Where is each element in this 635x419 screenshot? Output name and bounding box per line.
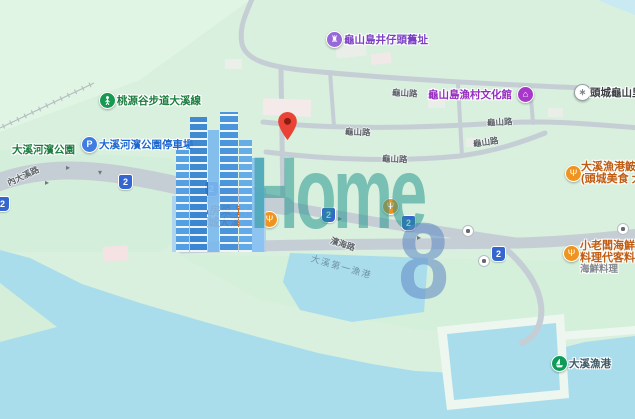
skyline-tower xyxy=(190,117,207,252)
poi-label-restaurant-boss[interactable]: 小老闆海鮮 料理代客料理 海鮮料理 xyxy=(580,240,635,276)
parking-icon[interactable]: P xyxy=(81,136,98,153)
corner-sea xyxy=(598,0,635,15)
poi-label-restaurant-fish[interactable]: 大溪漁港鮟鱇 (頭城美食 大 xyxy=(581,161,635,185)
parking-glyph: P xyxy=(86,140,92,149)
route-shield-2: 2 xyxy=(0,196,10,212)
map-pin-icon[interactable] xyxy=(278,112,297,140)
restaurant-boss-line1: 小老闆海鮮 xyxy=(580,240,635,252)
harbor-basin-water xyxy=(447,323,560,400)
poi-label-community[interactable]: 頭城龜山里活 xyxy=(590,85,635,100)
hiking-icon[interactable] xyxy=(99,92,116,109)
road-label-guishan-1: 龜山路 xyxy=(392,86,418,99)
restaurant-boss-line2: 料理代客料理 xyxy=(580,252,635,264)
watermark-number-text: 8 xyxy=(398,207,449,315)
restaurant-icon[interactable]: Ψ xyxy=(565,165,582,182)
restaurant-fish-line2: (頭城美食 大 xyxy=(581,173,635,185)
poi-label-trailhead[interactable]: 桃源谷步道大溪線 xyxy=(117,93,201,108)
monument-icon[interactable]: ♜ xyxy=(326,31,343,48)
road-vertical-2 xyxy=(330,72,334,126)
poi-label-harbor[interactable]: 大溪漁港 xyxy=(569,356,611,371)
generic-poi-icon[interactable]: ∗ xyxy=(574,84,591,101)
route-number: 2 xyxy=(123,177,128,187)
skyline-tower xyxy=(220,112,238,252)
map-canvas[interactable]: 內大溪路 濱海路 龜山路 龜山路 龜山路 龜山路 龜山路 大溪第一漁港 2 2 … xyxy=(0,0,635,419)
road-guishan-mid xyxy=(263,122,635,128)
hiker-glyph xyxy=(103,96,112,105)
museum-icon[interactable]: ⌂ xyxy=(517,86,534,103)
poi-label-park[interactable]: 大溪河濱公園 xyxy=(12,142,75,157)
harbor-icon[interactable] xyxy=(551,355,568,372)
poi-label-monument[interactable]: 龜山島井仔頭舊址 xyxy=(344,32,428,47)
route-number: 2 xyxy=(496,249,501,259)
road-marker-icon xyxy=(478,255,490,267)
boat-glyph xyxy=(555,359,564,368)
skyline-tower xyxy=(208,130,219,252)
oneway-arrow-icon: ▸ xyxy=(66,164,70,172)
road-marker-icon xyxy=(462,225,474,237)
restaurant-fish-line1: 大溪漁港鮟鱇 xyxy=(581,161,635,173)
restaurant-boss-line3: 海鮮料理 xyxy=(580,264,635,276)
oneway-arrow-icon: ▾︎ xyxy=(98,169,102,177)
restaurant-icon[interactable]: Ψ xyxy=(563,245,580,262)
road-guishan-north xyxy=(241,0,635,92)
route-number: 2 xyxy=(0,199,5,209)
oneway-arrow-icon: ▸ xyxy=(45,179,49,187)
poi-label-culture-hall[interactable]: 龜山島漁村文化館 xyxy=(417,87,512,102)
road-marker-icon xyxy=(617,223,629,235)
hill-tint xyxy=(0,0,250,132)
route-shield-2: 2 xyxy=(118,174,133,190)
route-shield-2: 2 xyxy=(491,246,506,262)
road-label-guishan-3: 龜山路 xyxy=(487,115,513,128)
skyline-tower xyxy=(176,150,189,252)
